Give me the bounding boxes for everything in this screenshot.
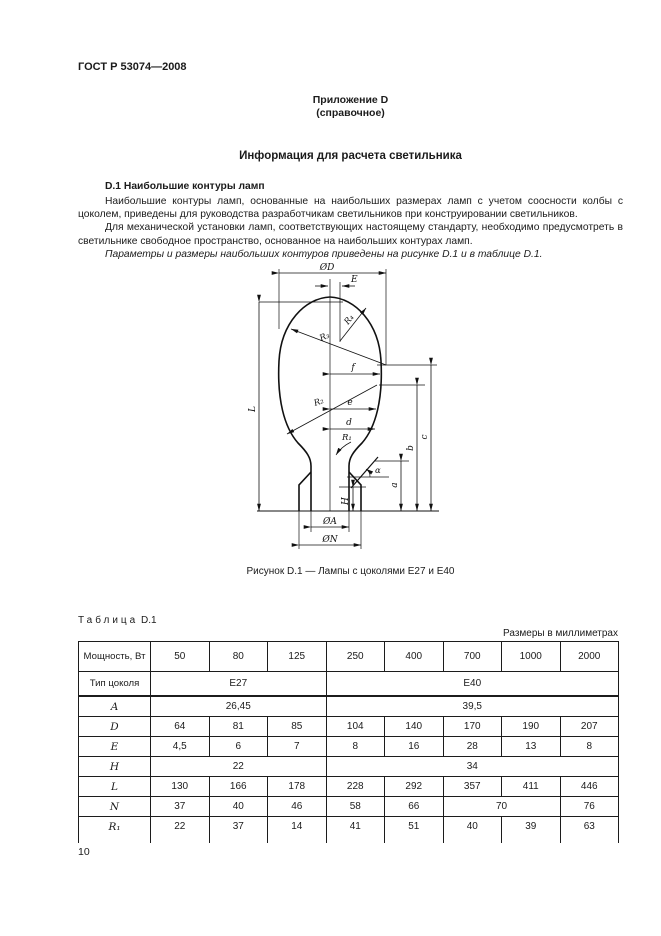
body-text: Наибольшие контуры ламп, основанные на н… bbox=[78, 195, 623, 261]
table-cell: Е27 bbox=[151, 672, 327, 697]
table-cell: 8 bbox=[326, 737, 385, 757]
document-code: ГОСТ Р 53074—2008 bbox=[78, 61, 187, 73]
table-cell: 357 bbox=[443, 777, 502, 797]
table-cell: 2000 bbox=[560, 642, 619, 672]
paragraph: Параметры и размеры наибольших контуров … bbox=[78, 248, 623, 261]
table-cell: 4,5 bbox=[151, 737, 210, 757]
table-cell: 411 bbox=[502, 777, 561, 797]
table-cell: 228 bbox=[326, 777, 385, 797]
dim-label-base-a: ØA bbox=[322, 516, 337, 527]
dim-label-d: d bbox=[346, 418, 352, 428]
row-label: N bbox=[79, 797, 151, 817]
table-cell: 37 bbox=[151, 797, 210, 817]
table-cell: 130 bbox=[151, 777, 210, 797]
table-cell: 28 bbox=[443, 737, 502, 757]
table-cell: 39,5 bbox=[326, 696, 619, 717]
table-cell: 63 bbox=[560, 817, 619, 844]
annex-line1: Приложение D bbox=[78, 94, 623, 107]
table-cell: 166 bbox=[209, 777, 268, 797]
table-cell: 51 bbox=[385, 817, 444, 844]
row-label: L bbox=[79, 777, 151, 797]
table-label: Таблица D.1 bbox=[78, 615, 157, 626]
dim-label-base-n: ØN bbox=[321, 534, 338, 545]
table-cell: 14 bbox=[268, 817, 327, 844]
table-row: R₁2237144151403963 bbox=[79, 817, 619, 844]
table-row: L130166178228292357411446 bbox=[79, 777, 619, 797]
table-cell: 64 bbox=[151, 717, 210, 737]
radius-label-r1: R₁ bbox=[341, 433, 352, 443]
table-label-word: Таблица bbox=[78, 615, 138, 626]
table-cell: 58 bbox=[326, 797, 385, 817]
table-cell: 39 bbox=[502, 817, 561, 844]
section-heading: D.1 Наибольшие контуры ламп bbox=[78, 181, 623, 192]
table-cell: 104 bbox=[326, 717, 385, 737]
table-cell: 125 bbox=[268, 642, 327, 672]
table-cell: 22 bbox=[151, 817, 210, 844]
table-cell: 76 bbox=[560, 797, 619, 817]
table-label-number: D.1 bbox=[141, 615, 157, 626]
dim-label-h: H bbox=[341, 497, 351, 506]
page-title: Информация для расчета светильника bbox=[78, 150, 623, 162]
table-cell: 178 bbox=[268, 777, 327, 797]
table-cell: 34 bbox=[326, 757, 619, 777]
table-cell: 207 bbox=[560, 717, 619, 737]
table-cell: 37 bbox=[209, 817, 268, 844]
table-cell: 80 bbox=[209, 642, 268, 672]
table-cell: 700 bbox=[443, 642, 502, 672]
dim-label-a: a bbox=[390, 482, 400, 487]
table-cell: 170 bbox=[443, 717, 502, 737]
dim-label-e: e bbox=[347, 398, 352, 408]
table-cell: 46 bbox=[268, 797, 327, 817]
table-cell: 190 bbox=[502, 717, 561, 737]
row-label: H bbox=[79, 757, 151, 777]
table-row: Тип цоколяЕ27Е40 bbox=[79, 672, 619, 697]
table-row: A26,4539,5 bbox=[79, 696, 619, 717]
table-row: N37404658667076 bbox=[79, 797, 619, 817]
dimensions-table: Мощность, Вт508012525040070010002000Тип … bbox=[78, 641, 619, 843]
annex-heading: Приложение D (справочное) bbox=[78, 94, 623, 120]
table-cell: 50 bbox=[151, 642, 210, 672]
dimensions-table-body: Мощность, Вт508012525040070010002000Тип … bbox=[79, 642, 619, 844]
table-cell: 8 bbox=[560, 737, 619, 757]
table-cell: Е40 bbox=[326, 672, 619, 697]
table-cell: 250 bbox=[326, 642, 385, 672]
table-cell: 70 bbox=[443, 797, 560, 817]
table-row: Мощность, Вт508012525040070010002000 bbox=[79, 642, 619, 672]
paragraph: Наибольшие контуры ламп, основанные на н… bbox=[78, 195, 623, 221]
table-cell: 140 bbox=[385, 717, 444, 737]
dim-label-l: L bbox=[248, 406, 258, 413]
table-cell: 66 bbox=[385, 797, 444, 817]
table-cell: 13 bbox=[502, 737, 561, 757]
figure-lamp-outline: ØD E L f e d c b a H R₃ R₄ R₂ R₁ α ØA ØN bbox=[229, 261, 461, 557]
annex-line2: (справочное) bbox=[78, 107, 623, 120]
paragraph: Для механической установки ламп, соответ… bbox=[78, 221, 623, 247]
row-label: R₁ bbox=[79, 817, 151, 844]
table-cell: 7 bbox=[268, 737, 327, 757]
document-page: ГОСТ Р 53074—2008 Приложение D (справочн… bbox=[0, 0, 661, 936]
table-row: D648185104140170190207 bbox=[79, 717, 619, 737]
table-cell: 22 bbox=[151, 757, 327, 777]
skirt-angle-line bbox=[351, 457, 378, 488]
table-cell: 292 bbox=[385, 777, 444, 797]
dim-label-c: c bbox=[420, 434, 430, 439]
dim-label-cap-offset-e: E bbox=[350, 275, 358, 285]
dim-label-b: b bbox=[406, 445, 416, 451]
table-cell: 26,45 bbox=[151, 696, 327, 717]
radius-label-r4: R₄ bbox=[342, 312, 357, 327]
table-cell: 41 bbox=[326, 817, 385, 844]
table-cell: 85 bbox=[268, 717, 327, 737]
table-cell: 1000 bbox=[502, 642, 561, 672]
row-label: E bbox=[79, 737, 151, 757]
table-cell: 81 bbox=[209, 717, 268, 737]
page-number: 10 bbox=[78, 846, 90, 858]
dim-label-f: f bbox=[350, 363, 356, 373]
row-label: A bbox=[79, 696, 151, 717]
table-row: E4,56781628138 bbox=[79, 737, 619, 757]
table-cell: 16 bbox=[385, 737, 444, 757]
table-cell: 40 bbox=[443, 817, 502, 844]
table-cell: 446 bbox=[560, 777, 619, 797]
table-cell: 40 bbox=[209, 797, 268, 817]
dim-label-diameter-d: ØD bbox=[319, 262, 335, 273]
units-note: Размеры в миллиметрах bbox=[78, 628, 618, 639]
radius-label-r2: R₂ bbox=[312, 396, 326, 409]
table-row: H2234 bbox=[79, 757, 619, 777]
row-label: Тип цоколя bbox=[79, 672, 151, 697]
row-label: Мощность, Вт bbox=[79, 642, 151, 672]
row-label: D bbox=[79, 717, 151, 737]
radius-label-r3: R₃ bbox=[317, 330, 331, 344]
angle-label-alpha: α bbox=[375, 466, 381, 476]
table-cell: 6 bbox=[209, 737, 268, 757]
table-cell: 400 bbox=[385, 642, 444, 672]
figure-caption: Рисунок D.1 — Лампы с цоколями Е27 и Е40 bbox=[78, 566, 623, 577]
